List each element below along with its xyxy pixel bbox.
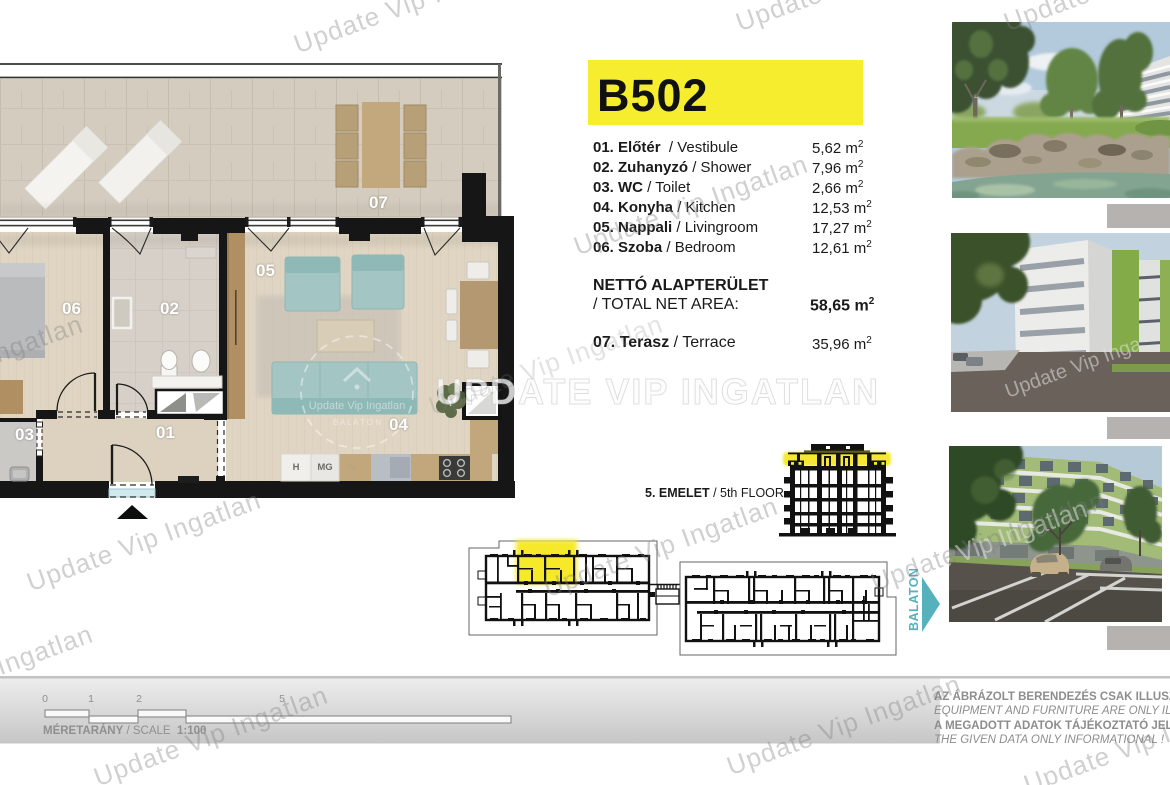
svg-text:2: 2	[136, 693, 142, 705]
svg-text:N: N	[349, 462, 356, 473]
svg-text:1: 1	[88, 693, 94, 705]
svg-text:0: 0	[42, 693, 48, 705]
svg-text:MG: MG	[317, 462, 332, 473]
svg-text:Update Vip Ingatlan: Update Vip Ingatlan	[309, 400, 405, 412]
svg-text:H: H	[293, 462, 300, 473]
svg-text:B A L A T O N: B A L A T O N	[333, 418, 382, 427]
